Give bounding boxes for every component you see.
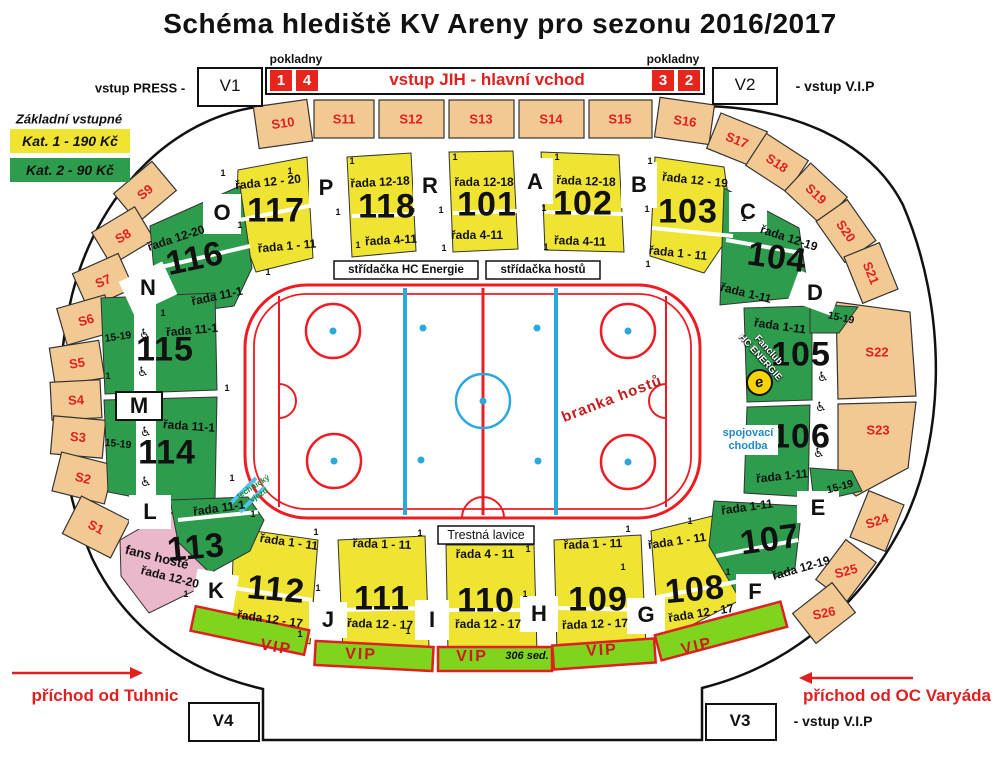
row1-marker: 1 xyxy=(229,473,234,483)
row-101-bottom: řada 4-11 xyxy=(451,228,503,242)
row1-marker: 1 xyxy=(287,166,292,176)
ring-s23: S23 xyxy=(866,423,889,438)
row1-marker: 1 xyxy=(313,527,318,537)
row1-marker: 1 xyxy=(541,203,546,213)
bench-home-label: střídačka HC Energie xyxy=(348,264,464,276)
ring-s14: S14 xyxy=(539,112,562,127)
ice-rink xyxy=(245,285,700,518)
row1-marker: 1 xyxy=(250,509,255,519)
letter-i: I xyxy=(429,607,435,633)
main-gate-label: vstup JIH - hlavní vchod xyxy=(389,70,585,90)
pokladny-right-label: pokladny xyxy=(647,52,700,66)
wheelchair-icon: ♿ xyxy=(140,474,152,490)
letter-a: A xyxy=(527,169,543,195)
pokladny-left-label: pokladny xyxy=(270,52,323,66)
ring-s11: S11 xyxy=(333,112,355,127)
row1-marker: 1 xyxy=(441,243,446,253)
letter-j: J xyxy=(322,607,334,633)
row1-marker: 1 xyxy=(543,242,548,252)
arena-seating-diagram: Schéma hlediště KV Areny pro sezonu 2016… xyxy=(0,0,1000,759)
row1-marker: 1 xyxy=(335,207,340,217)
wheelchair-icon: ♿ xyxy=(815,399,827,415)
letter-n: N xyxy=(140,275,156,301)
ticket-box-2: 2 xyxy=(678,70,700,91)
row-111-top: řada 1 - 11 xyxy=(352,536,411,552)
row1-marker: 1 xyxy=(349,156,354,166)
row1-marker: 1 xyxy=(105,371,110,381)
legend-heading: Základní vstupné xyxy=(16,112,122,127)
row1-marker: 1 xyxy=(405,626,410,636)
entrance-v3-label: V3 xyxy=(730,711,751,731)
approach-left-label: příchod od Tuhnic xyxy=(32,686,179,706)
letter-g: G xyxy=(637,602,654,628)
row1-marker: 1 xyxy=(725,567,730,577)
wheelchair-icon: ♿ xyxy=(813,445,825,461)
vstup-press-label: vstup PRESS - xyxy=(95,81,185,96)
row-109-bottom: řada 12 - 17 xyxy=(562,616,628,632)
ring-s22: S22 xyxy=(865,345,888,360)
row-110-top: řada 4 - 11 xyxy=(456,547,515,561)
arena-shapes xyxy=(0,0,1000,759)
row-110-bottom: řada 12 - 17 xyxy=(455,617,521,631)
entrance-v2-label: V2 xyxy=(735,75,756,95)
row1-marker: 1 xyxy=(160,308,165,318)
ticket-box-1: 1 xyxy=(270,70,292,91)
entrance-v1-label: V1 xyxy=(220,76,241,96)
ring-s12: S12 xyxy=(399,112,422,127)
row1-marker: 1 xyxy=(297,629,302,639)
approach-right-label: příchod od OC Varyáda xyxy=(803,686,991,706)
penalty-box-label: Trestná lavice xyxy=(447,528,524,542)
ticket-box-4: 4 xyxy=(296,70,318,91)
section-109-number: 109 xyxy=(568,581,628,620)
row-102-top: řada 12-18 xyxy=(556,173,616,189)
section-107-number: 107 xyxy=(738,517,803,564)
row1-marker: 1 xyxy=(644,204,649,214)
ring-s5: S5 xyxy=(68,354,86,371)
bench-away-label: střídačka hostů xyxy=(501,264,586,276)
wheelchair-icon: ♿ xyxy=(137,364,149,380)
vstup-vip-top-label: - vstup V.I.P xyxy=(796,78,875,94)
corridor-line1: spojovací xyxy=(723,427,774,439)
row1-marker: 1 xyxy=(237,220,242,230)
row1-marker: 1 xyxy=(625,524,630,534)
row-102-bottom: řada 4-11 xyxy=(554,233,607,249)
section-111-number: 111 xyxy=(354,580,410,619)
section-110-number: 110 xyxy=(457,582,515,621)
letter-h: H xyxy=(531,601,547,627)
legend-kat1-label: Kat. 1 - 190 Kč xyxy=(22,133,118,149)
letter-d: D xyxy=(807,280,823,306)
letter-m: M xyxy=(130,393,148,419)
vip-label-2: VIP xyxy=(345,645,377,664)
row1-marker: 1 xyxy=(741,213,746,223)
row1-marker: 1 xyxy=(620,562,625,572)
vip-label-3: VIP xyxy=(456,648,488,666)
section-102-number: 102 xyxy=(553,185,613,224)
row1-marker: 1 xyxy=(522,589,527,599)
section-118-number: 118 xyxy=(358,188,416,227)
row-118-bottom: řada 4-11 xyxy=(365,232,418,249)
row1-marker: 1 xyxy=(452,152,457,162)
entrance-v4-label: V4 xyxy=(213,711,234,731)
row-101-top: řada 12-18 xyxy=(454,175,513,189)
row1-marker: 1 xyxy=(438,205,443,215)
ring-s10: S10 xyxy=(270,114,295,132)
row1-marker: 1 xyxy=(355,240,360,250)
row1-marker: 1 xyxy=(554,152,559,162)
corridor-label: spojovací chodba xyxy=(723,427,774,453)
row-109-top: řada 1 - 11 xyxy=(563,536,622,552)
letter-o: O xyxy=(213,200,230,226)
row1-marker: 1 xyxy=(647,156,652,166)
fanclub-logo-letter: e xyxy=(752,370,766,394)
letter-p: P xyxy=(319,175,334,201)
corridor-line2: chodba xyxy=(728,440,767,452)
letter-k: K xyxy=(208,578,224,604)
row1-marker: 1 xyxy=(645,259,650,269)
vip-label-4: VIP xyxy=(586,641,619,661)
page-title: Schéma hlediště KV Areny pro sezonu 2016… xyxy=(163,8,837,40)
letter-f: F xyxy=(748,579,761,605)
section-112-number: 112 xyxy=(245,568,306,612)
row1-marker: 1 xyxy=(417,528,422,538)
wheelchair-icon: ♿ xyxy=(139,326,151,342)
letter-l: L xyxy=(143,499,156,525)
section-101-number: 101 xyxy=(457,186,517,225)
vip-seats-label: 306 sed. xyxy=(505,650,548,662)
ring-s4: S4 xyxy=(68,392,85,408)
letter-e: E xyxy=(811,495,826,521)
row1-marker: 1 xyxy=(220,168,225,178)
ticket-box-3: 3 xyxy=(652,70,674,91)
ring-s3: S3 xyxy=(69,429,86,445)
row-111-bottom: řada 12 - 17 xyxy=(347,616,413,632)
row1-marker: 1 xyxy=(265,267,270,277)
wheelchair-icon: ♿ xyxy=(817,369,829,385)
ring-s15: S15 xyxy=(608,112,631,127)
section-117-number: 117 xyxy=(247,192,305,231)
row1-marker: 1 xyxy=(315,583,320,593)
legend-kat2-label: Kat. 2 - 90 Kč xyxy=(26,162,114,178)
fanclub-logo: e xyxy=(746,369,773,396)
ring-s16: S16 xyxy=(672,112,697,130)
ring-s13: S13 xyxy=(469,112,492,127)
letter-b: B xyxy=(631,172,647,198)
row1-marker: 1 xyxy=(224,383,229,393)
row1-marker: 1 xyxy=(687,516,692,526)
row1-marker: 1 xyxy=(183,589,188,599)
letter-r: R xyxy=(422,173,438,199)
wheelchair-icon: ♿ xyxy=(140,424,152,440)
vstup-vip-bottom-label: - vstup V.I.P xyxy=(794,713,873,729)
section-103-number: 103 xyxy=(658,193,718,232)
row1-marker: 1 xyxy=(525,544,530,554)
